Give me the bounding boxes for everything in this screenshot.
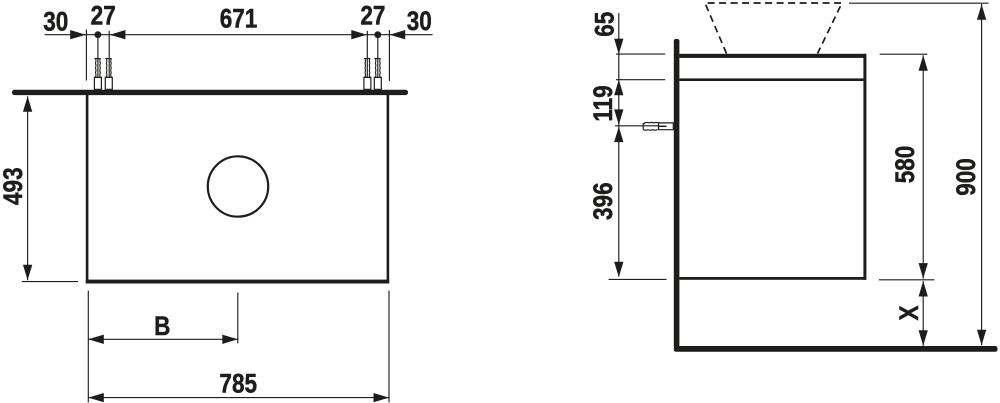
svg-text:B: B: [154, 312, 170, 341]
svg-text:65: 65: [591, 12, 620, 37]
svg-text:671: 671: [220, 5, 258, 34]
svg-text:396: 396: [589, 182, 618, 220]
svg-text:30: 30: [43, 8, 68, 37]
svg-text:X: X: [895, 305, 924, 321]
svg-text:119: 119: [589, 85, 618, 121]
svg-text:30: 30: [407, 7, 432, 36]
svg-text:27: 27: [360, 2, 385, 31]
svg-text:900: 900: [952, 158, 981, 196]
svg-text:785: 785: [219, 370, 257, 399]
svg-text:27: 27: [91, 2, 116, 31]
svg-text:493: 493: [0, 167, 28, 205]
svg-text:580: 580: [891, 146, 920, 184]
